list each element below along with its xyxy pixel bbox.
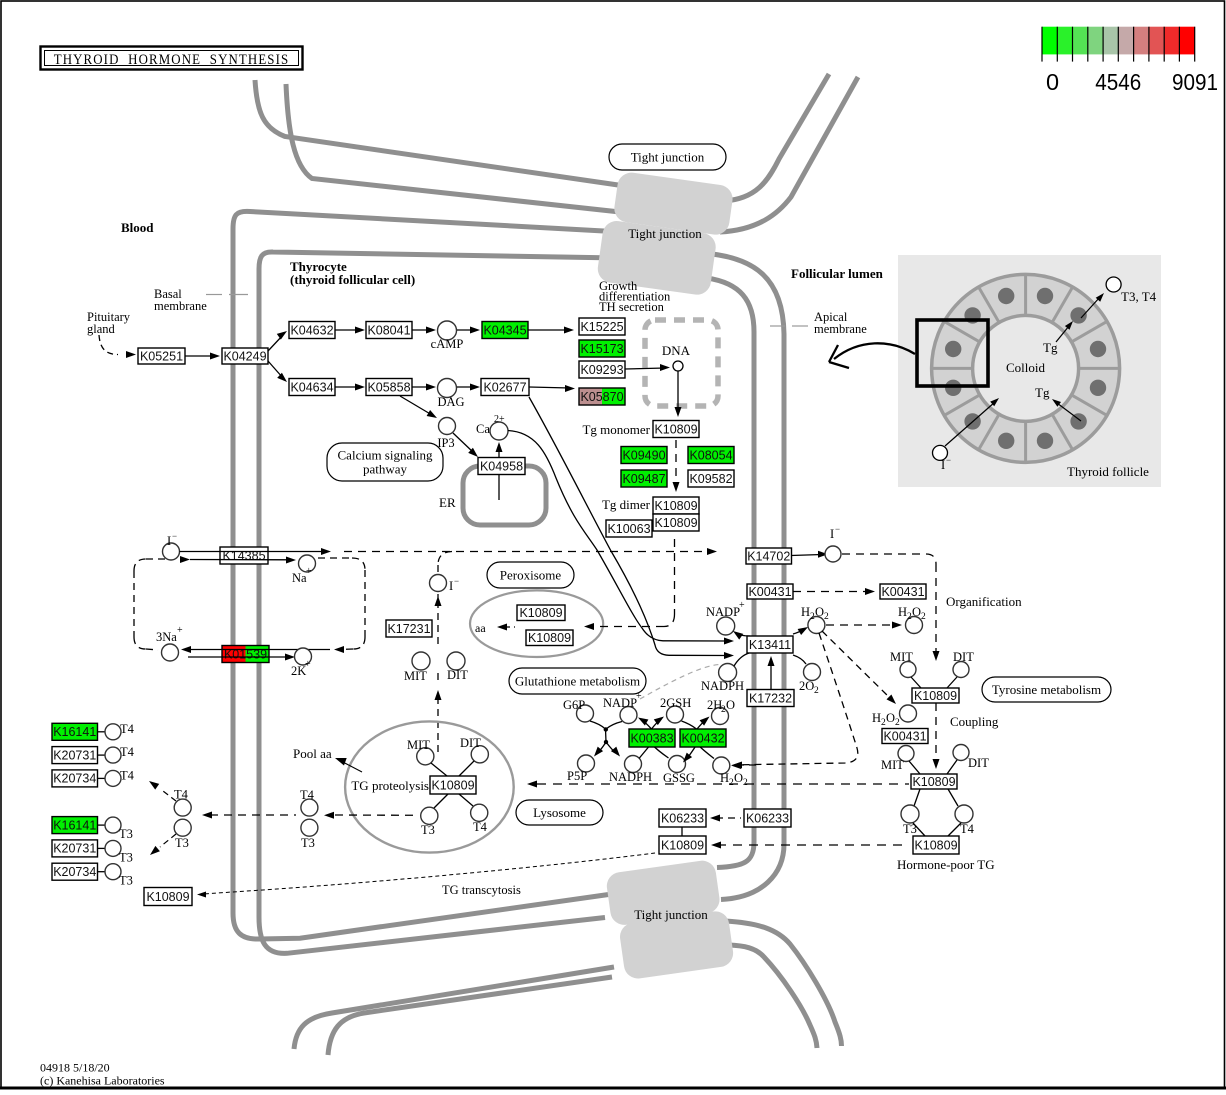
svg-text:K06233: K06233	[661, 811, 704, 825]
svg-text:O: O	[734, 771, 743, 785]
svg-text:K10063: K10063	[607, 522, 650, 536]
svg-text:2: 2	[921, 612, 926, 622]
svg-text:K16141: K16141	[53, 725, 96, 739]
svg-text:K15225: K15225	[580, 320, 623, 334]
svg-text:K09582: K09582	[689, 472, 732, 486]
svg-text:T3: T3	[175, 836, 189, 850]
svg-text:Tight junction: Tight junction	[628, 226, 702, 241]
svg-text:Lysosome: Lysosome	[533, 805, 586, 820]
svg-text:K05858: K05858	[367, 380, 410, 394]
svg-text:MIT: MIT	[890, 650, 913, 664]
svg-text:−: −	[172, 531, 177, 541]
svg-text:K17232: K17232	[749, 691, 792, 705]
svg-text:T4: T4	[120, 768, 135, 782]
svg-text:9091: 9091	[1172, 69, 1218, 96]
svg-text:Pool aa: Pool aa	[293, 746, 332, 761]
svg-text:Tg: Tg	[1035, 385, 1050, 400]
svg-text:Peroxisome: Peroxisome	[500, 568, 562, 583]
svg-text:Tight junction: Tight junction	[634, 907, 708, 922]
svg-text:T4: T4	[300, 788, 315, 802]
svg-text:K04958: K04958	[480, 459, 523, 473]
svg-text:K20734: K20734	[53, 865, 96, 879]
svg-text:K04345: K04345	[483, 323, 526, 337]
svg-text:TG proteolysis: TG proteolysis	[351, 778, 429, 793]
svg-text:Calcium signaling: Calcium signaling	[338, 448, 433, 463]
svg-text:Ca: Ca	[476, 422, 490, 436]
svg-text:K20734: K20734	[53, 772, 96, 786]
svg-text:MIT: MIT	[881, 758, 904, 772]
svg-text:T4: T4	[960, 822, 975, 836]
svg-text:TG transcytosis: TG transcytosis	[442, 883, 521, 897]
svg-text:K10809: K10809	[431, 778, 474, 792]
svg-text:T3, T4: T3, T4	[1121, 289, 1157, 304]
svg-text:T3: T3	[301, 836, 315, 850]
svg-text:K04249: K04249	[223, 349, 266, 363]
svg-text:K10809: K10809	[914, 689, 957, 703]
svg-text:H: H	[898, 605, 907, 619]
svg-text:K10809: K10809	[912, 775, 955, 789]
svg-text:aa: aa	[475, 621, 486, 635]
svg-text:K10809: K10809	[519, 606, 562, 620]
svg-text:K00431: K00431	[748, 585, 791, 599]
svg-text:P5P: P5P	[567, 769, 587, 783]
svg-text:K04634: K04634	[290, 380, 333, 394]
svg-text:Blood: Blood	[121, 220, 154, 235]
svg-text:2GSH: 2GSH	[660, 696, 691, 710]
svg-text:TH secretion: TH secretion	[599, 300, 665, 314]
svg-text:K00431: K00431	[881, 585, 924, 599]
svg-text:GSSG: GSSG	[663, 771, 695, 785]
svg-text:DIT: DIT	[953, 650, 974, 664]
svg-text:K10809: K10809	[654, 516, 697, 530]
svg-text:cAMP: cAMP	[431, 337, 464, 351]
svg-text:2+: 2+	[494, 414, 505, 425]
svg-text:ER: ER	[439, 495, 456, 510]
svg-text:K15173: K15173	[580, 342, 623, 356]
svg-text:I: I	[449, 579, 453, 593]
svg-text:(c) Kanehisa Laboratories: (c) Kanehisa Laboratories	[40, 1074, 165, 1088]
svg-text:Tg: Tg	[1043, 340, 1058, 355]
svg-text:−: −	[946, 455, 951, 465]
svg-text:O: O	[726, 698, 735, 712]
svg-text:DIT: DIT	[460, 736, 481, 750]
svg-text:K00383: K00383	[630, 731, 673, 745]
svg-text:2H: 2H	[707, 698, 722, 712]
svg-text:K05870: K05870	[580, 390, 623, 404]
svg-text:T4: T4	[473, 820, 488, 834]
svg-text:Thyroid follicle: Thyroid follicle	[1067, 464, 1149, 479]
svg-text:2: 2	[895, 718, 900, 728]
svg-text:K09490: K09490	[622, 448, 665, 462]
svg-text:MIT: MIT	[407, 738, 430, 752]
svg-text:K02677: K02677	[483, 380, 526, 394]
svg-text:DIT: DIT	[968, 756, 989, 770]
svg-text:−: −	[454, 576, 459, 586]
svg-text:K14702: K14702	[747, 549, 790, 563]
svg-text:3Na: 3Na	[156, 630, 177, 644]
svg-text:NADPH: NADPH	[609, 770, 652, 784]
svg-text:K09487: K09487	[622, 472, 665, 486]
svg-text:K08054: K08054	[689, 448, 732, 462]
svg-text:Hormone-poor TG: Hormone-poor TG	[897, 857, 995, 872]
svg-text:+: +	[739, 600, 745, 611]
svg-text:K05251: K05251	[140, 349, 183, 363]
svg-text:0: 0	[1046, 69, 1059, 95]
svg-text:O: O	[912, 605, 921, 619]
svg-text:T3: T3	[119, 827, 133, 841]
svg-text:DIT: DIT	[447, 668, 468, 682]
svg-text:K13411: K13411	[749, 638, 791, 652]
svg-text:K10809: K10809	[654, 499, 697, 513]
svg-text:K00431: K00431	[883, 729, 926, 743]
svg-text:K10809: K10809	[914, 838, 957, 852]
svg-text:Glutathione metabolism: Glutathione metabolism	[515, 674, 640, 689]
svg-text:I: I	[941, 458, 945, 472]
svg-text:(thyroid follicular cell): (thyroid follicular cell)	[290, 272, 415, 287]
svg-text:K09293: K09293	[580, 363, 623, 377]
svg-text:04918 5/18/20: 04918 5/18/20	[40, 1061, 110, 1075]
svg-text:K08041: K08041	[367, 323, 410, 337]
svg-text:T4: T4	[174, 788, 189, 802]
svg-text:T4: T4	[120, 722, 135, 736]
svg-text:Organification: Organification	[946, 594, 1022, 609]
svg-text:Follicular lumen: Follicular lumen	[791, 266, 884, 281]
svg-text:K17231: K17231	[387, 622, 430, 636]
svg-text:Tg monomer: Tg monomer	[582, 422, 650, 437]
svg-text:DNA: DNA	[662, 343, 691, 358]
svg-text:H: H	[872, 711, 881, 725]
svg-text:gland: gland	[87, 322, 116, 336]
svg-text:pathway: pathway	[363, 462, 408, 477]
svg-text:K10809: K10809	[661, 838, 704, 852]
svg-text:K10809: K10809	[654, 422, 697, 436]
svg-text:Na: Na	[292, 571, 307, 585]
svg-text:+: +	[177, 625, 183, 636]
svg-text:4546: 4546	[1095, 69, 1141, 96]
svg-text:K20731: K20731	[53, 842, 96, 856]
svg-text:H: H	[720, 771, 729, 785]
svg-text:+: +	[306, 566, 312, 577]
svg-text:K00432: K00432	[681, 731, 724, 745]
svg-text:2: 2	[743, 778, 748, 788]
svg-text:K10809: K10809	[146, 890, 189, 904]
svg-text:Tg dimer: Tg dimer	[602, 497, 651, 512]
svg-text:G6P: G6P	[563, 698, 585, 712]
svg-text:Tyrosine metabolism: Tyrosine metabolism	[992, 682, 1101, 697]
svg-text:THYROID HORMONE SYNTHESIS: THYROID HORMONE SYNTHESIS	[54, 52, 290, 68]
svg-text:membrane: membrane	[814, 322, 867, 336]
svg-text:T3: T3	[119, 874, 133, 888]
svg-text:+: +	[305, 659, 311, 670]
svg-text:K04632: K04632	[290, 323, 333, 337]
svg-text:K06233: K06233	[746, 811, 789, 825]
svg-text:MIT: MIT	[404, 669, 427, 683]
svg-text:O: O	[815, 605, 824, 619]
svg-text:I: I	[167, 534, 171, 548]
svg-text:K10809: K10809	[528, 631, 571, 645]
svg-text:DAG: DAG	[437, 395, 464, 409]
svg-text:T4: T4	[120, 745, 135, 759]
svg-text:T3: T3	[421, 823, 435, 837]
svg-text:2K: 2K	[291, 664, 306, 678]
svg-text:2: 2	[824, 612, 829, 622]
svg-text:NADP: NADP	[603, 696, 637, 710]
svg-text:O: O	[886, 711, 895, 725]
svg-text:−: −	[835, 524, 840, 534]
svg-text:H: H	[801, 605, 810, 619]
svg-text:NADP: NADP	[706, 605, 740, 619]
svg-text:Tight junction: Tight junction	[631, 150, 705, 165]
svg-text:2: 2	[814, 686, 819, 696]
svg-text:Coupling: Coupling	[950, 714, 999, 729]
svg-text:K20731: K20731	[53, 748, 96, 762]
svg-text:T3: T3	[119, 850, 133, 864]
svg-text:NADPH: NADPH	[701, 679, 744, 693]
svg-text:K16141: K16141	[53, 818, 96, 832]
svg-text:+: +	[636, 691, 642, 702]
svg-text:2O: 2O	[799, 679, 814, 693]
svg-text:IP3: IP3	[437, 436, 454, 450]
svg-text:membrane: membrane	[154, 299, 207, 313]
svg-text:Colloid: Colloid	[1006, 360, 1046, 375]
svg-text:I: I	[830, 527, 834, 541]
